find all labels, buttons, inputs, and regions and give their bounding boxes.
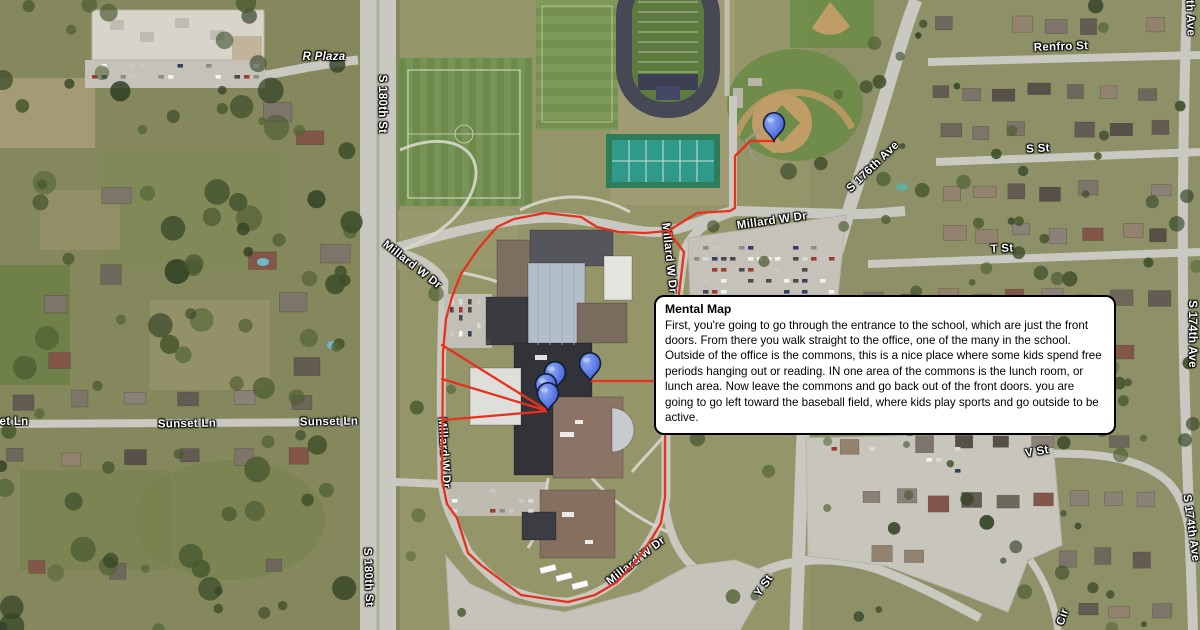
baseball-field-pin[interactable] [764, 113, 785, 141]
front-doors-east-pin[interactable] [580, 353, 601, 381]
satellite-map[interactable]: R Plaza S 180th St th Ave Renfro St S St… [0, 0, 1200, 630]
info-popup-title: Mental Map [665, 302, 1105, 318]
info-popup-body: First, you're going to go through the en… [665, 318, 1105, 426]
info-popup: Mental Map First, you're going to go thr… [654, 295, 1116, 435]
